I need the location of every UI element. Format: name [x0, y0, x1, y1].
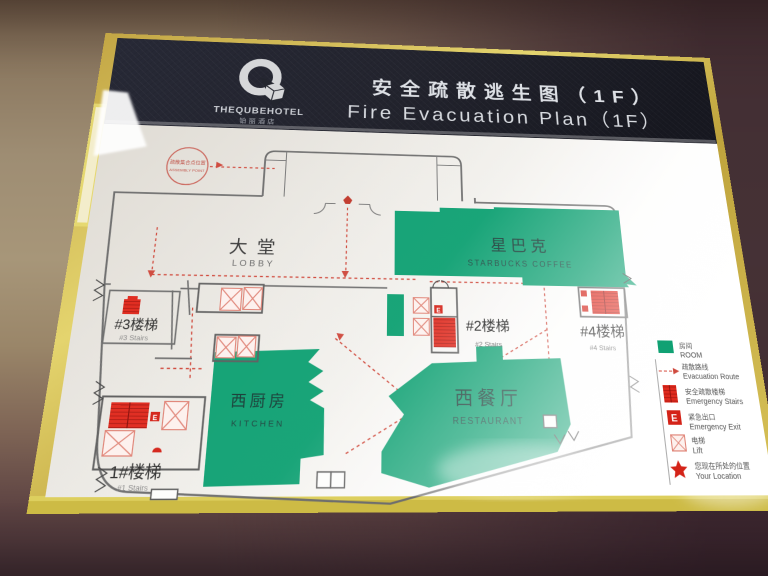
svg-text:ROOM: ROOM [680, 352, 703, 360]
svg-text:Emergency Stairs: Emergency Stairs [686, 398, 744, 407]
svg-text:Lift: Lift [692, 447, 703, 456]
svg-text:Your Location: Your Location [696, 472, 743, 481]
svg-text:Evacuation Route: Evacuation Route [683, 373, 741, 382]
svg-text:Emergency Exit: Emergency Exit [689, 423, 742, 432]
